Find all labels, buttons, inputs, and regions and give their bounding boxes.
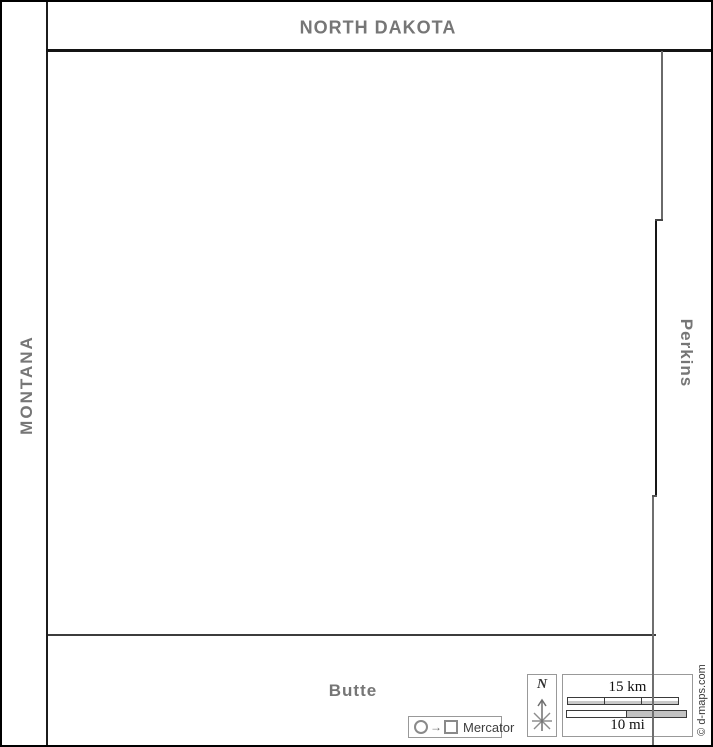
projection-arrow-icon: →: [430, 721, 442, 733]
perkins-county-border-line-upper: [661, 51, 663, 221]
compass-box: N: [527, 674, 557, 737]
compass-north-label: N: [528, 677, 556, 693]
region-label-montana: MONTANA: [17, 335, 37, 435]
projection-globe-circle-icon: [414, 720, 428, 734]
scale-bar-mi: [566, 710, 687, 718]
perkins-county-border-line-middle: [655, 221, 657, 497]
scale-mi-label: 10 mi: [610, 717, 645, 734]
butte-county-border-line: [48, 634, 656, 636]
region-label-butte: Butte: [329, 681, 377, 701]
projection-legend-box: → Mercator: [408, 716, 502, 738]
projection-name: Mercator: [463, 720, 514, 735]
north-dakota-state-border-line: [46, 49, 713, 52]
projection-flat-square-icon: [444, 720, 458, 734]
compass-rose-icon: [530, 693, 554, 733]
perkins-county-border-line-lower: [652, 497, 654, 747]
scale-bar-km: [567, 697, 679, 705]
scale-mi-right-half: [626, 711, 687, 717]
scale-bar-box: 15 km 10 mi: [562, 674, 693, 737]
scale-km-tick-1: [604, 698, 605, 704]
copyright-credit: © d-maps.com: [696, 664, 708, 736]
scale-km-label: 15 km: [609, 679, 647, 696]
region-label-perkins: Perkins: [676, 319, 696, 387]
scale-km-tick-2: [641, 698, 642, 704]
region-label-north-dakota: NORTH DAKOTA: [300, 18, 457, 39]
